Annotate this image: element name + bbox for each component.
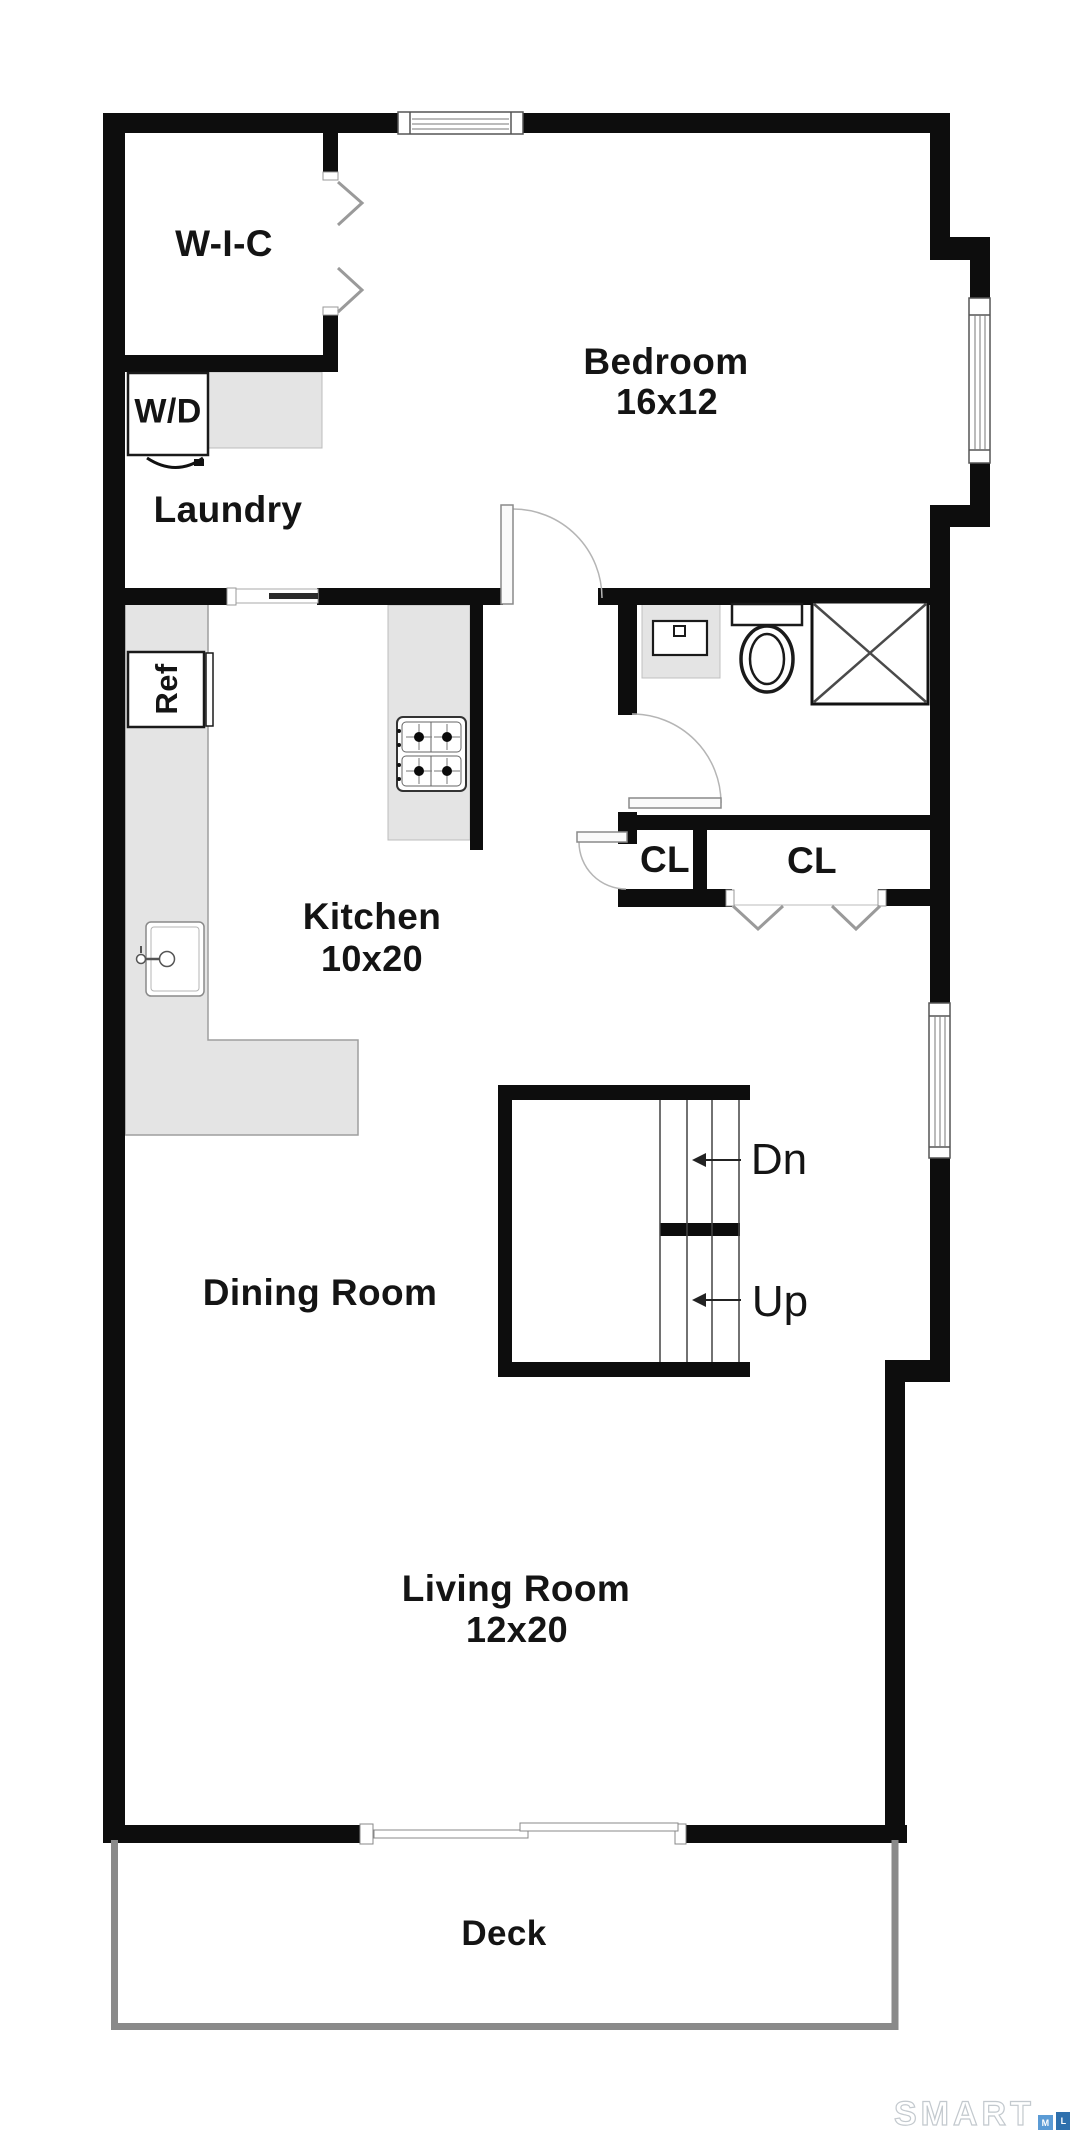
stove	[397, 717, 466, 791]
bedroom-bay-window	[969, 298, 990, 463]
room-dims-bedroom: 16x12	[616, 381, 718, 423]
fixtures	[128, 373, 928, 996]
mls-l-badge: L	[1056, 2112, 1070, 2130]
closet-right-label: CL	[787, 840, 837, 882]
room-dims-living: 12x20	[466, 1609, 568, 1651]
room-label-dining: Dining Room	[203, 1272, 438, 1314]
vanity-sink	[653, 621, 707, 655]
closet-left-door	[577, 832, 627, 889]
bathroom-door	[629, 714, 721, 808]
stairs-down-label: Dn	[751, 1135, 807, 1185]
room-label-laundry: Laundry	[154, 489, 303, 531]
top-window	[398, 112, 523, 134]
room-label-bedroom: Bedroom	[583, 341, 748, 383]
room-label-living: Living Room	[402, 1568, 630, 1610]
stairs-up-label: Up	[752, 1277, 808, 1327]
room-label-wic: W-I-C	[175, 223, 273, 265]
floorplan-drawing	[0, 0, 1070, 2148]
closet-left-label: CL	[640, 839, 690, 881]
room-dims-kitchen: 10x20	[321, 938, 423, 980]
wic-bifold-doors	[323, 172, 362, 315]
right-wall-window	[929, 1003, 950, 1158]
laundry-slider-door	[227, 588, 318, 605]
room-label-kitchen: Kitchen	[303, 896, 441, 938]
toilet	[732, 604, 802, 692]
kitchen-sink	[137, 922, 205, 996]
mls-m-badge: M	[1038, 2115, 1053, 2130]
refrigerator-label: Ref	[149, 663, 185, 714]
room-label-deck: Deck	[461, 1914, 546, 1954]
stairs-up-arrow	[692, 1293, 741, 1307]
smartmls-watermark: SMART M L S	[894, 2094, 1070, 2130]
smartmls-brand-text: SMART	[894, 2098, 1035, 2130]
bedroom-door	[501, 505, 602, 604]
washer-dryer-label: W/D	[134, 393, 201, 432]
floorplan-canvas: W-I-C Bedroom 16x12 Laundry W/D Ref Kitc…	[0, 0, 1070, 2148]
laundry-counter	[208, 372, 322, 448]
shower	[812, 602, 928, 704]
stairs-down-arrow	[692, 1153, 741, 1167]
deck-sliding-door	[360, 1823, 686, 1844]
closet-right-bifold-doors	[726, 890, 886, 929]
